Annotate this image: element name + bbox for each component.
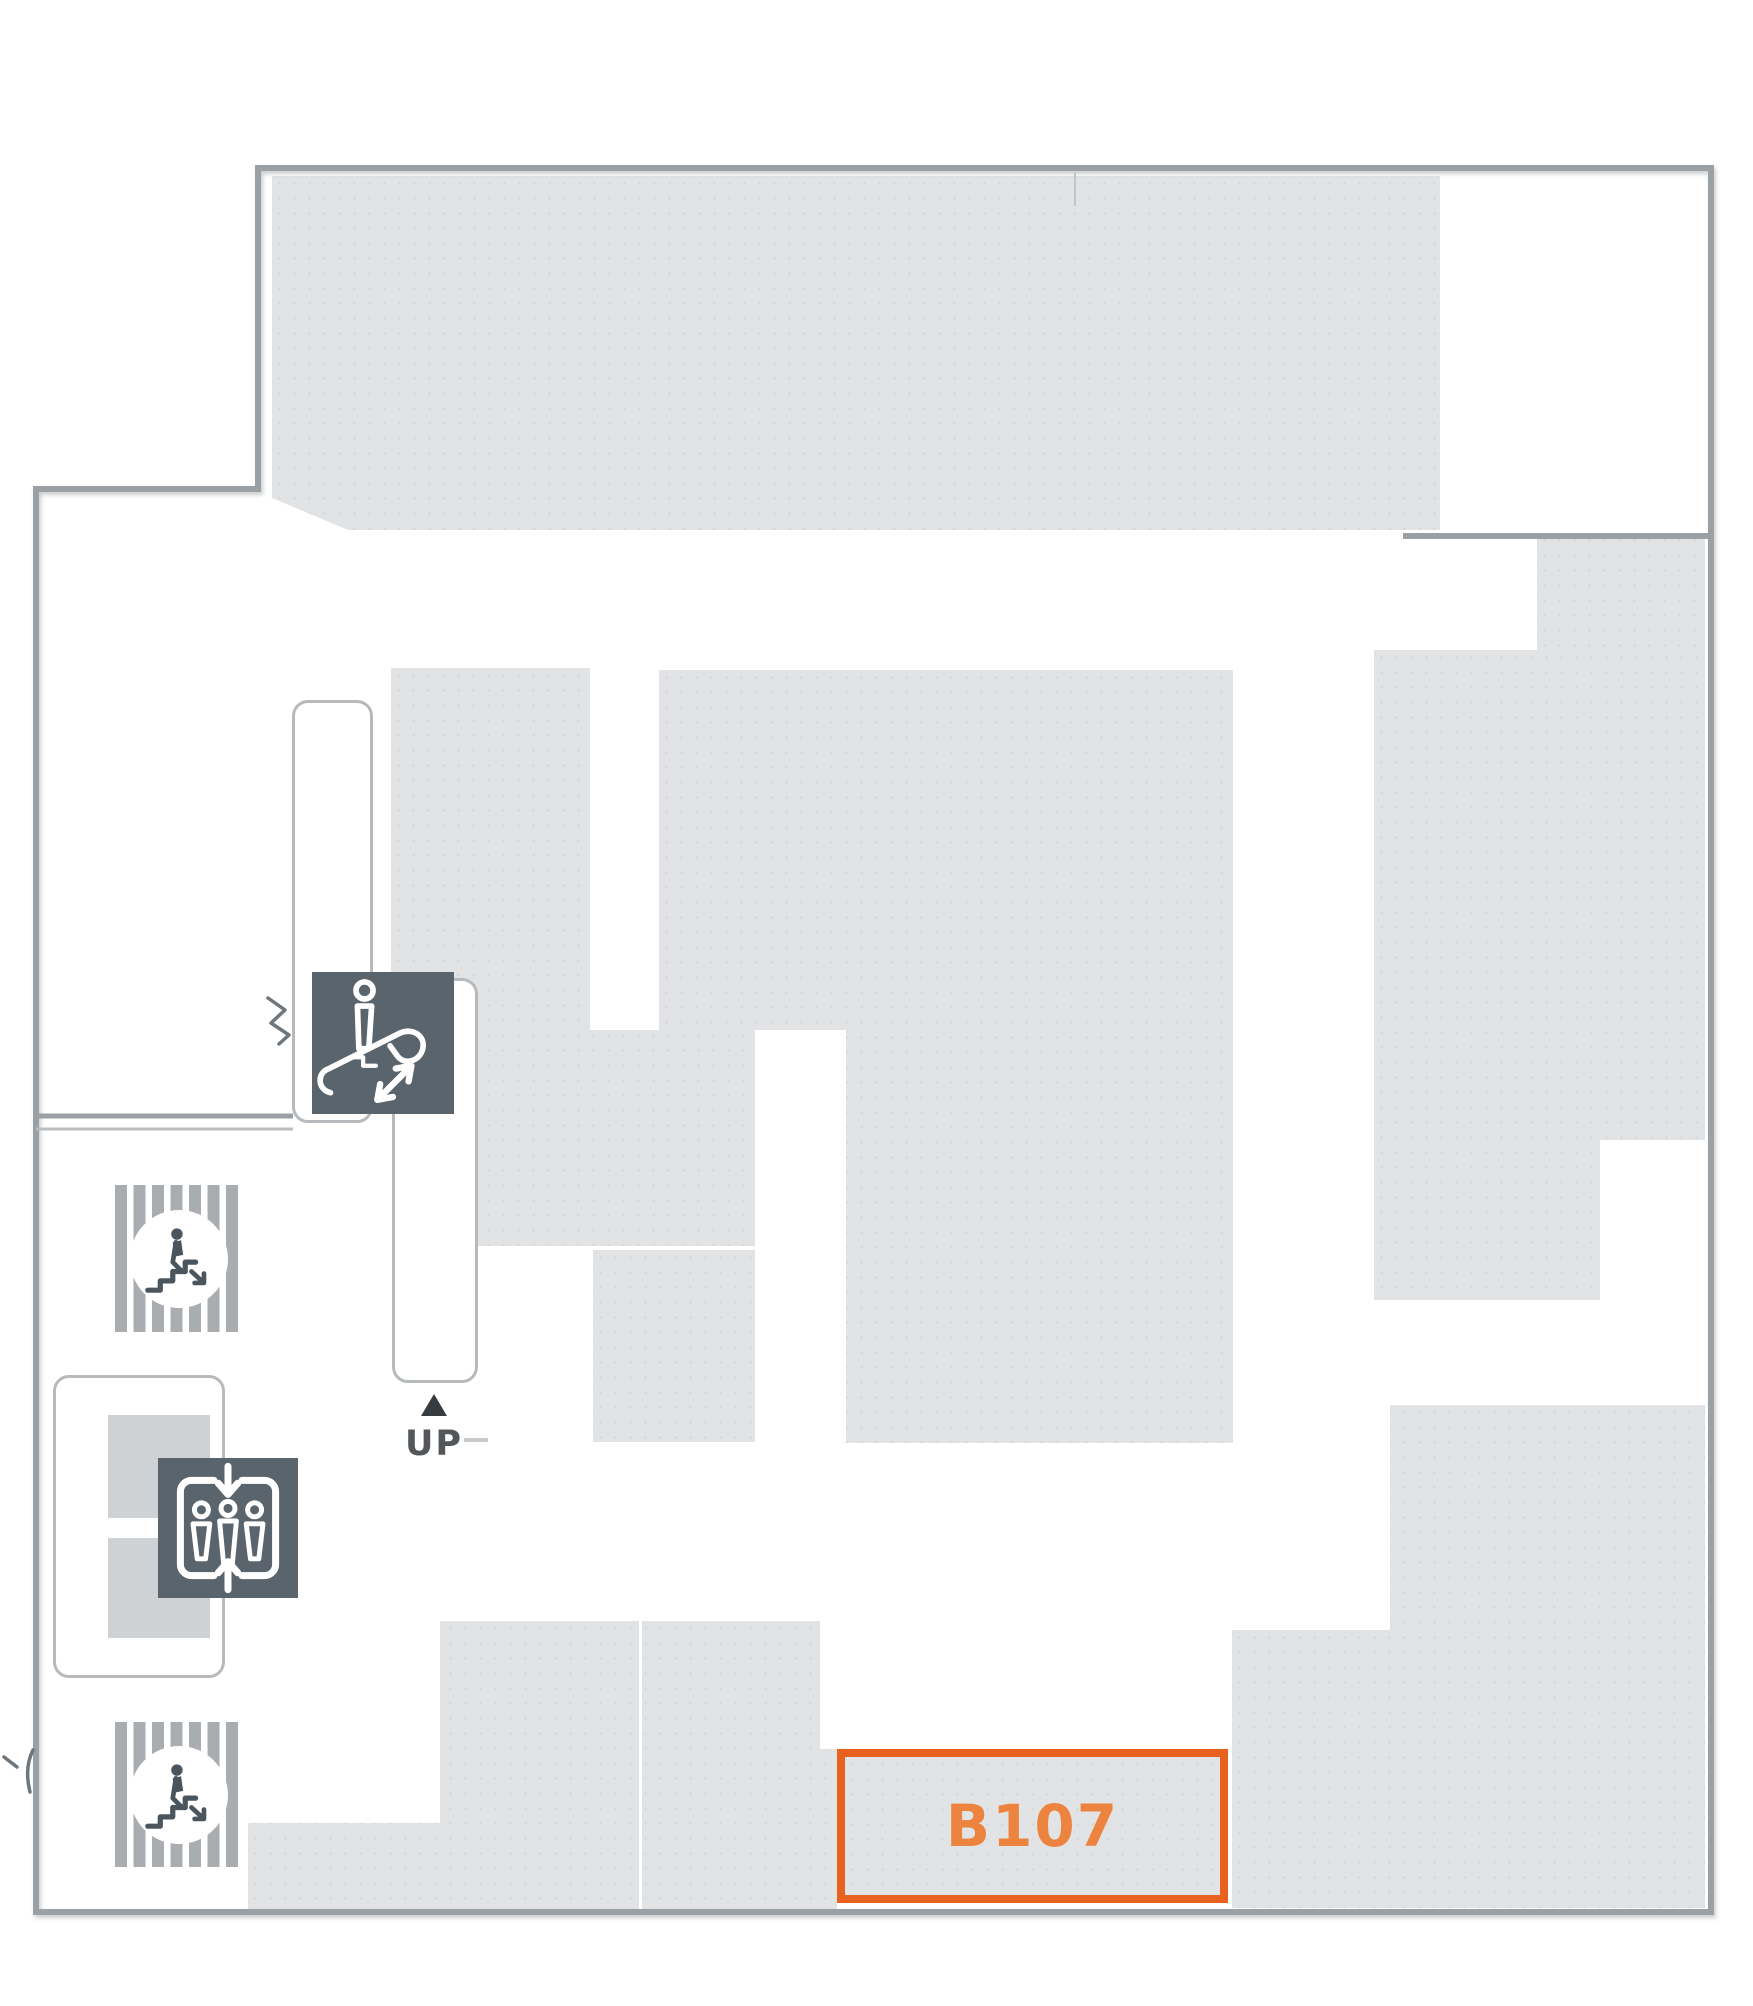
- up-label: UP: [399, 1424, 469, 1464]
- stairs-icon-glyph: [127, 1743, 231, 1847]
- elevator-icon-glyph: [158, 1458, 298, 1598]
- room-b107[interactable]: B107: [837, 1749, 1228, 1903]
- floor-block-right-mid: [1374, 650, 1705, 1300]
- floor-plan: B107: [0, 0, 1753, 2006]
- scribble-mark: [268, 998, 289, 1044]
- stairs-icon-glyph: [127, 1207, 231, 1311]
- stairs-icon-lower: [115, 1722, 243, 1867]
- up-arrow-icon: [421, 1394, 447, 1416]
- floor-seam: [639, 1621, 642, 1910]
- up-dash-mark: [464, 1438, 488, 1442]
- edge-mark: [4, 1750, 33, 1792]
- floor-block-top: [272, 176, 1440, 530]
- elevator-icon: [158, 1458, 298, 1598]
- escalator-icon: [312, 972, 454, 1114]
- stairs-icon-upper: [115, 1185, 243, 1332]
- floor-block-mid-left-foot: [593, 1250, 755, 1442]
- floor-block-bottom: [248, 1621, 837, 1910]
- floor-block-bottom-right: [1232, 1405, 1705, 1908]
- escalator-icon-glyph: [312, 972, 454, 1114]
- floor-block-right-upper: [1537, 533, 1705, 650]
- room-b107-label: B107: [946, 1792, 1119, 1860]
